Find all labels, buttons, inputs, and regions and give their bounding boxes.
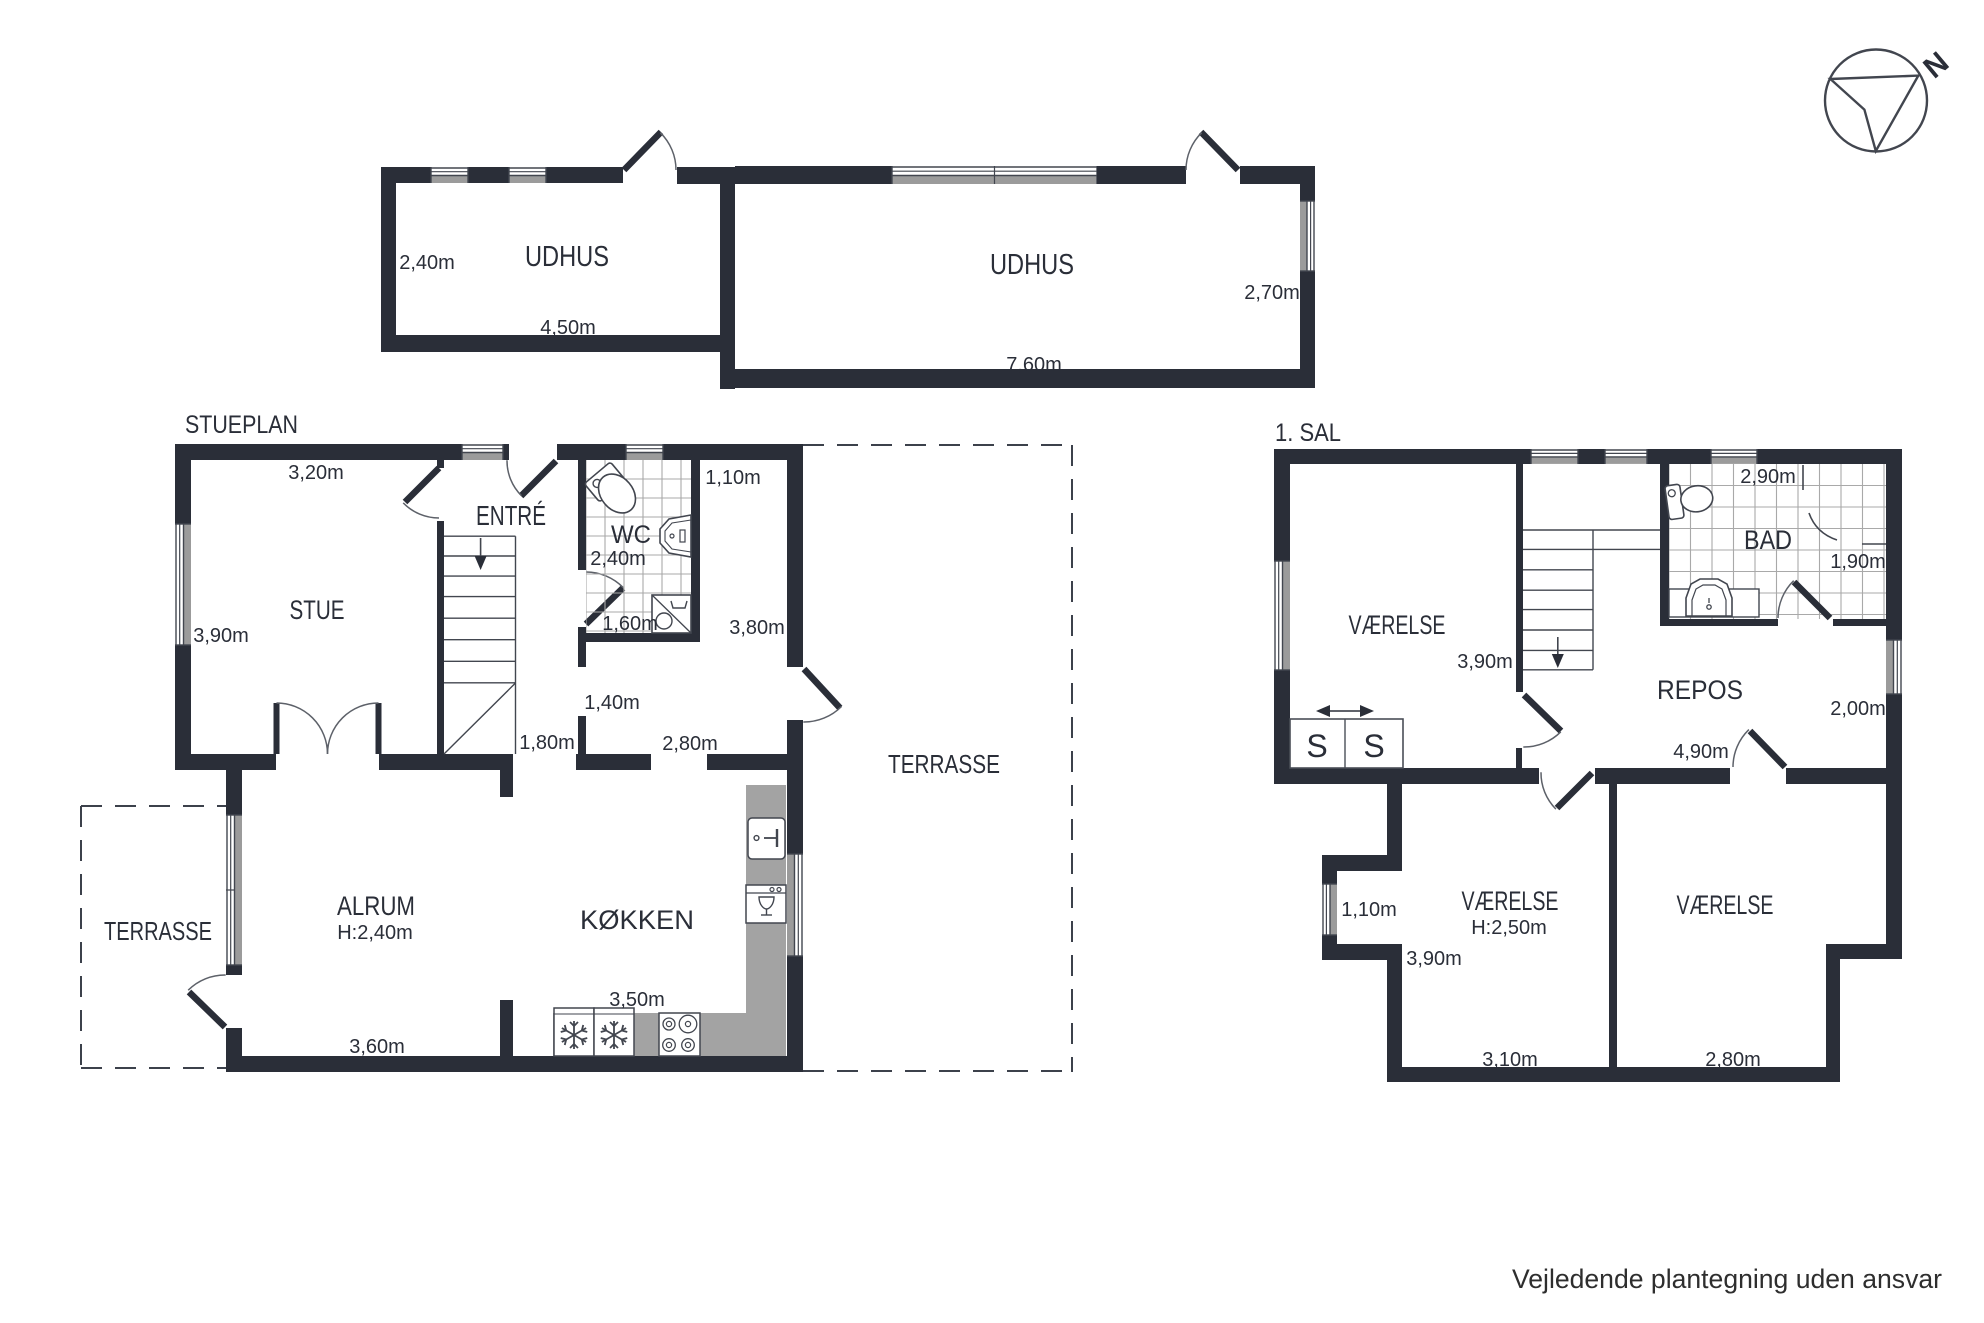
svg-text:STUEPLAN: STUEPLAN xyxy=(185,411,298,439)
svg-text:3,50m: 3,50m xyxy=(609,989,665,1011)
svg-text:2,40m: 2,40m xyxy=(590,548,646,570)
svg-text:2,80m: 2,80m xyxy=(662,733,718,755)
svg-text:1,10m: 1,10m xyxy=(1341,899,1397,921)
svg-text:VÆRELSE: VÆRELSE xyxy=(1462,886,1559,916)
svg-text:2,80m: 2,80m xyxy=(1705,1049,1761,1071)
svg-text:4,50m: 4,50m xyxy=(540,317,596,339)
svg-text:3,60m: 3,60m xyxy=(349,1036,405,1058)
svg-text:WC: WC xyxy=(611,521,651,549)
svg-text:3,20m: 3,20m xyxy=(288,462,344,484)
svg-text:ALRUM: ALRUM xyxy=(337,891,415,921)
svg-text:UDHUS: UDHUS xyxy=(525,241,609,273)
svg-text:2,00m: 2,00m xyxy=(1830,698,1886,720)
svg-text:REPOS: REPOS xyxy=(1657,675,1743,705)
svg-text:7,60m: 7,60m xyxy=(1006,354,1062,376)
svg-text:1,10m: 1,10m xyxy=(705,467,761,489)
svg-text:1. SAL: 1. SAL xyxy=(1275,419,1341,447)
svg-text:1,80m: 1,80m xyxy=(519,732,575,754)
svg-text:3,90m: 3,90m xyxy=(193,625,249,647)
svg-text:S: S xyxy=(1306,728,1327,764)
svg-text:4,90m: 4,90m xyxy=(1673,741,1729,763)
svg-text:2,70m: 2,70m xyxy=(1244,282,1300,304)
svg-text:1,40m: 1,40m xyxy=(584,692,640,714)
svg-text:VÆRELSE: VÆRELSE xyxy=(1677,890,1774,920)
svg-text:UDHUS: UDHUS xyxy=(990,249,1074,281)
svg-text:3,90m: 3,90m xyxy=(1457,651,1513,673)
svg-text:H:2,40m: H:2,40m xyxy=(337,922,413,944)
svg-text:BAD: BAD xyxy=(1744,525,1792,555)
svg-text:H:2,50m: H:2,50m xyxy=(1471,917,1547,939)
svg-text:3,80m: 3,80m xyxy=(729,617,785,639)
svg-text:3,90m: 3,90m xyxy=(1406,948,1462,970)
svg-text:1,60m: 1,60m xyxy=(602,613,658,635)
svg-text:KØKKEN: KØKKEN xyxy=(580,905,694,935)
svg-text:ENTRÉ: ENTRÉ xyxy=(476,500,546,531)
svg-text:2,90m: 2,90m xyxy=(1740,466,1796,488)
svg-text:1,90m: 1,90m xyxy=(1830,551,1886,573)
svg-text:2,40m: 2,40m xyxy=(399,252,455,274)
svg-text:S: S xyxy=(1363,728,1384,764)
svg-text:STUE: STUE xyxy=(290,595,345,625)
svg-text:VÆRELSE: VÆRELSE xyxy=(1349,610,1446,640)
svg-text:Vejledende plantegning uden an: Vejledende plantegning uden ansvar xyxy=(1512,1264,1942,1294)
svg-text:TERRASSE: TERRASSE xyxy=(888,749,1000,779)
svg-text:3,10m: 3,10m xyxy=(1482,1049,1538,1071)
svg-text:TERRASSE: TERRASSE xyxy=(104,916,212,946)
